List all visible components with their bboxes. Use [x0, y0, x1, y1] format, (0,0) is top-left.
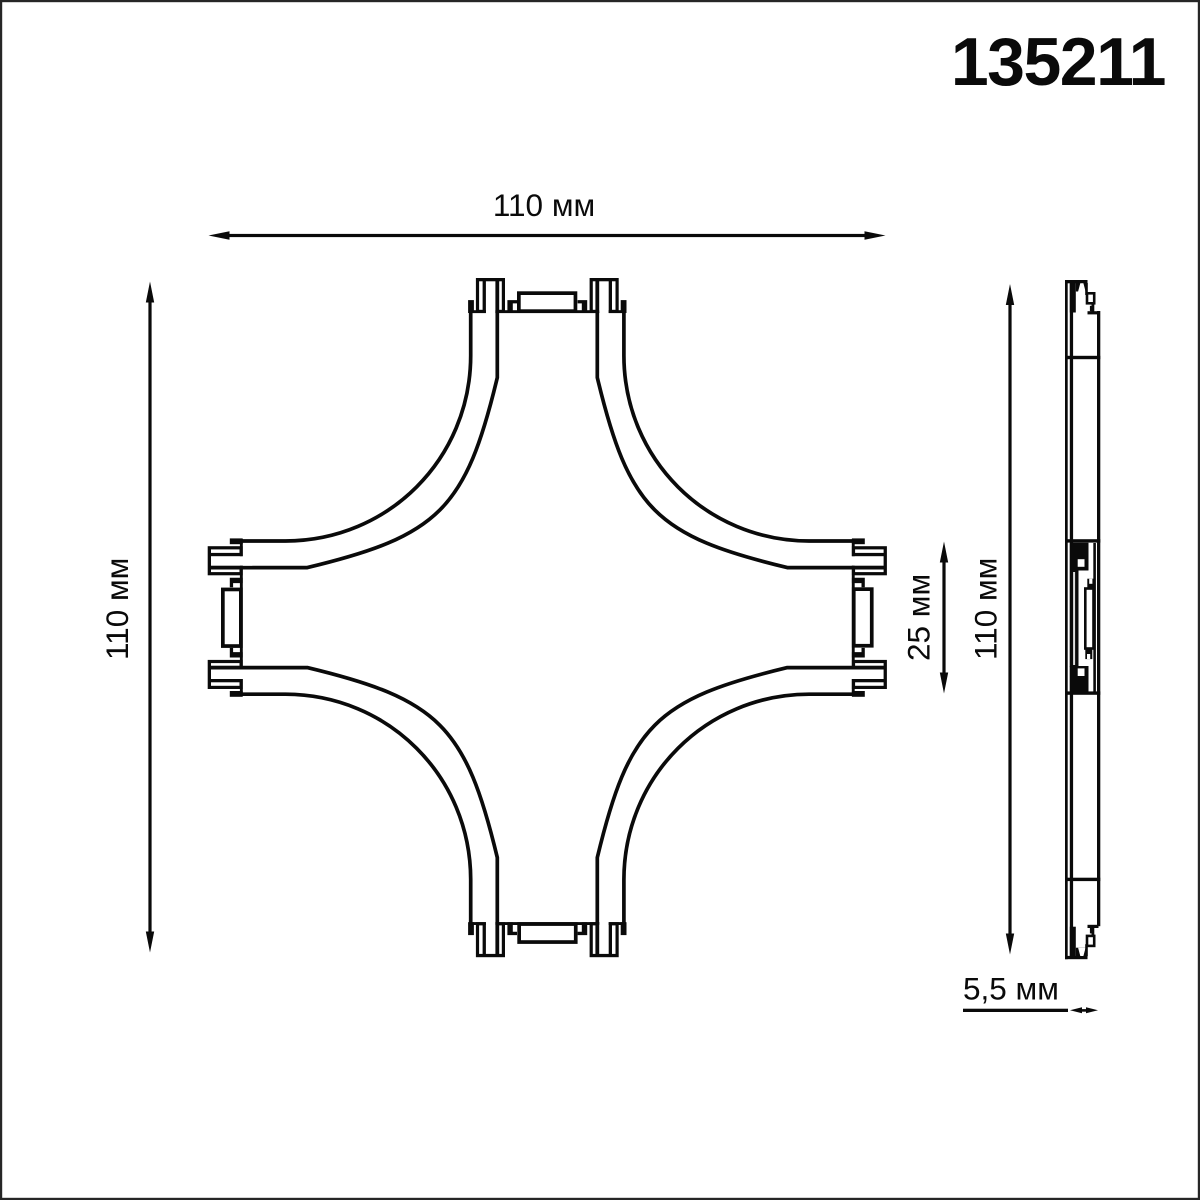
svg-text:110 мм: 110 мм — [493, 187, 595, 223]
svg-text:135211: 135211 — [951, 24, 1165, 100]
svg-text:110 мм: 110 мм — [99, 558, 135, 660]
svg-text:25 мм: 25 мм — [901, 574, 937, 661]
svg-text:5,5 мм: 5,5 мм — [963, 971, 1059, 1007]
svg-text:110 мм: 110 мм — [968, 558, 1004, 660]
